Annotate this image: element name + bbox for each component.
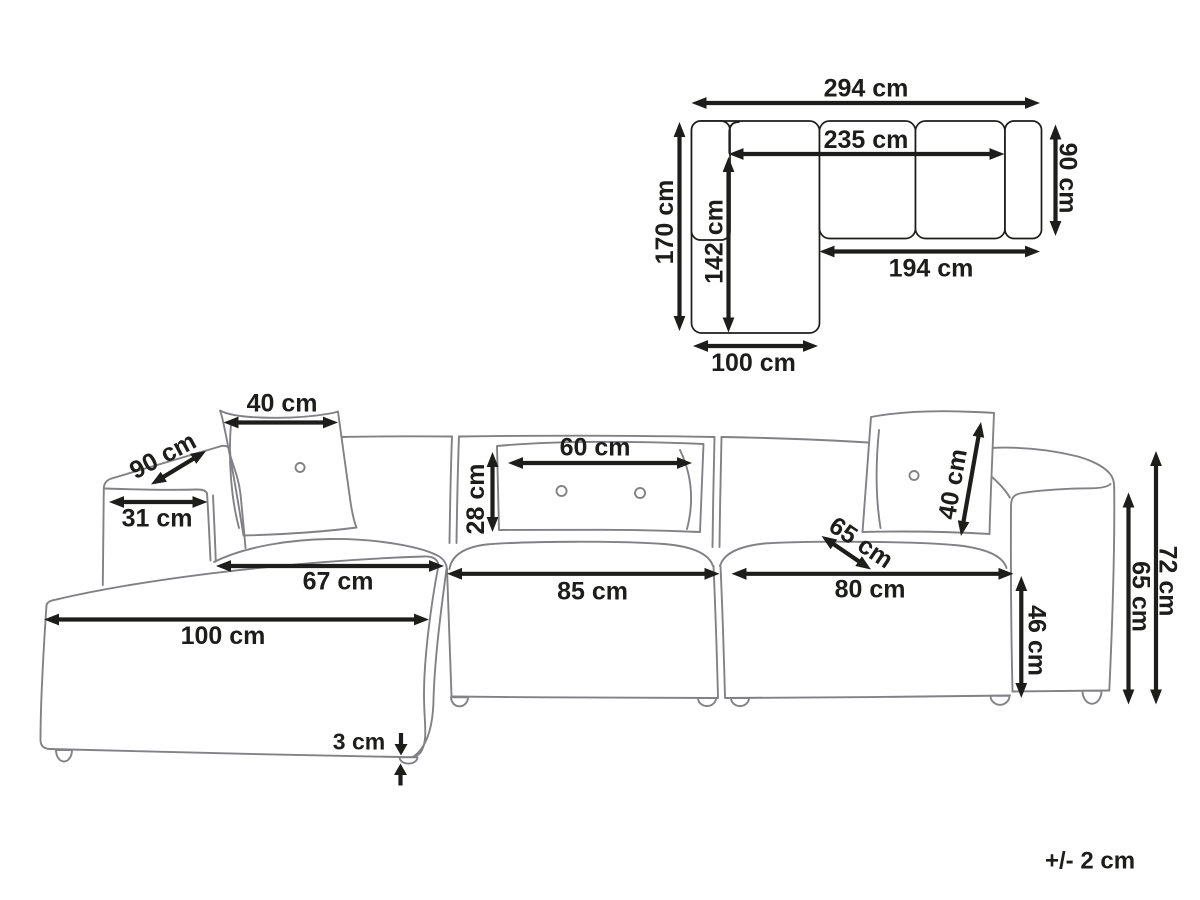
svg-text:3 cm: 3 cm: [333, 728, 385, 754]
svg-text:194 cm: 194 cm: [889, 255, 974, 283]
svg-text:40 cm: 40 cm: [247, 390, 318, 418]
svg-text:294 cm: 294 cm: [824, 75, 909, 103]
svg-text:65 cm: 65 cm: [1127, 561, 1155, 632]
svg-text:60 cm: 60 cm: [560, 434, 631, 462]
svg-text:67 cm: 67 cm: [303, 568, 374, 596]
svg-text:235 cm: 235 cm: [824, 126, 909, 154]
svg-text:+/- 2 cm: +/- 2 cm: [1045, 848, 1135, 875]
svg-text:31 cm: 31 cm: [122, 505, 193, 533]
svg-text:100 cm: 100 cm: [711, 349, 796, 377]
svg-text:100 cm: 100 cm: [181, 622, 266, 650]
svg-text:85 cm: 85 cm: [557, 578, 628, 606]
svg-text:142 cm: 142 cm: [701, 199, 729, 284]
svg-text:80 cm: 80 cm: [835, 576, 906, 604]
svg-text:90 cm: 90 cm: [1054, 143, 1082, 214]
svg-text:46 cm: 46 cm: [1023, 605, 1051, 676]
svg-text:28 cm: 28 cm: [462, 464, 490, 535]
svg-text:170 cm: 170 cm: [651, 180, 679, 265]
svg-text:72 cm: 72 cm: [1154, 546, 1182, 617]
